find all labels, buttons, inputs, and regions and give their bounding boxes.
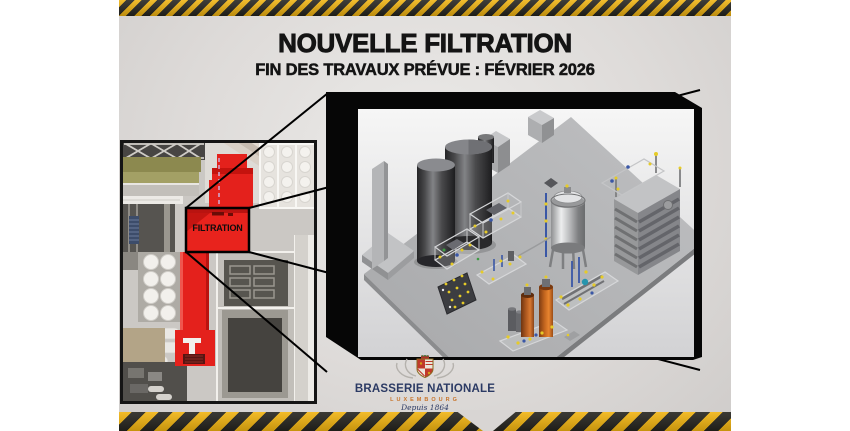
poster-title: NOUVELLE FILTRATION bbox=[119, 28, 731, 59]
building-plan-render bbox=[120, 140, 317, 404]
logo-city-text: LUXEMBOURG bbox=[350, 397, 500, 403]
hazard-stripe-top bbox=[119, 0, 731, 16]
filtration-zone-label: FILTRATION bbox=[186, 223, 249, 233]
logo-since-text: Depuis 1864 bbox=[350, 403, 500, 412]
poster: NOUVELLE FILTRATION FIN DES TRAVAUX PRÉV… bbox=[119, 0, 731, 431]
logo-brand-text: BRASSERIE NATIONALE bbox=[350, 383, 500, 395]
poster-subtitle: FIN DES TRAVAUX PRÉVUE : FÉVRIER 2026 bbox=[119, 61, 731, 80]
title-block: NOUVELLE FILTRATION FIN DES TRAVAUX PRÉV… bbox=[119, 28, 731, 80]
building-plan-svg bbox=[120, 140, 317, 404]
crest-shield bbox=[417, 359, 433, 379]
screenshot-canvas: NOUVELLE FILTRATION FIN DES TRAVAUX PRÉV… bbox=[0, 0, 850, 431]
tank-circle-group bbox=[138, 252, 182, 322]
tank-grid bbox=[260, 144, 315, 208]
center-rooms bbox=[217, 235, 295, 402]
filtration-3d-svg bbox=[358, 109, 694, 357]
hazard-stripe-bottom bbox=[119, 412, 731, 431]
brewery-crest-icon bbox=[377, 355, 473, 382]
brewery-logo: BRASSERIE NATIONALE LUXEMBOURG Depuis 18… bbox=[350, 355, 500, 412]
filtration-3d-render bbox=[358, 109, 694, 357]
right-corridor bbox=[295, 235, 317, 402]
